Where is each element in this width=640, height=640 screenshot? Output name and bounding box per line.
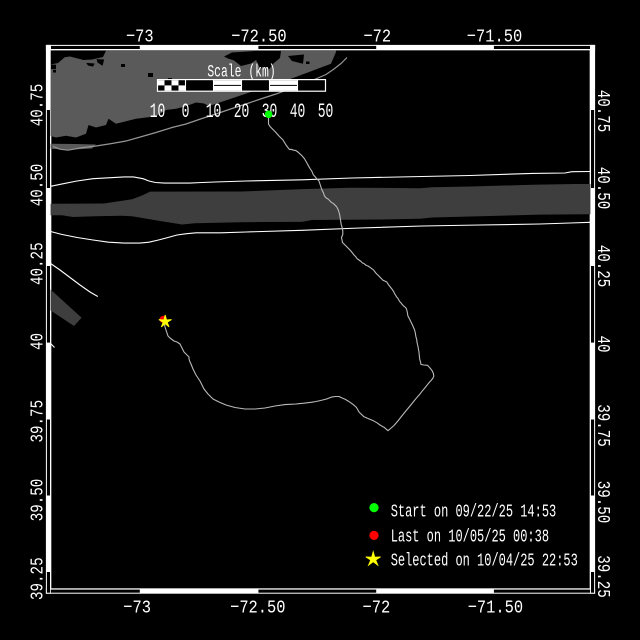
svg-text:39.25: 39.25 (592, 555, 613, 598)
svg-text:39.75: 39.75 (27, 400, 48, 443)
svg-text:40.25: 40.25 (27, 242, 48, 285)
svg-text:−71.50: −71.50 (468, 599, 523, 620)
svg-text:50: 50 (318, 101, 334, 124)
svg-text:−72: −72 (363, 599, 391, 620)
svg-text:10: 10 (206, 101, 222, 124)
svg-text:−73: −73 (126, 27, 154, 48)
svg-text:−71.50: −71.50 (467, 27, 522, 48)
svg-text:0: 0 (182, 101, 190, 124)
svg-text:−72: −72 (363, 27, 391, 48)
svg-text:40.75: 40.75 (27, 84, 48, 127)
svg-text:−73: −73 (123, 599, 151, 620)
svg-text:39.25: 39.25 (27, 557, 48, 600)
svg-text:−72.50: −72.50 (230, 599, 285, 620)
svg-text:Selected on 10/04/25 22:53: Selected on 10/04/25 22:53 (391, 550, 578, 571)
svg-text:39.75: 39.75 (592, 404, 613, 447)
svg-text:20: 20 (234, 101, 250, 124)
svg-text:40.75: 40.75 (592, 90, 613, 133)
svg-text:Start on 09/22/25 14:53: Start on 09/22/25 14:53 (391, 501, 557, 522)
svg-text:Last on 10/05/25 00:38: Last on 10/05/25 00:38 (391, 526, 549, 547)
svg-text:40: 40 (290, 101, 306, 124)
svg-text:39.50: 39.50 (27, 479, 48, 522)
svg-text:Scale (km): Scale (km) (207, 64, 275, 83)
svg-text:39.50: 39.50 (592, 481, 613, 524)
svg-text:40.25: 40.25 (592, 245, 613, 288)
svg-text:40.50: 40.50 (27, 164, 48, 207)
svg-text:10: 10 (150, 101, 166, 124)
svg-text:40: 40 (592, 335, 613, 352)
svg-text:40: 40 (27, 333, 48, 350)
svg-text:−72.50: −72.50 (231, 27, 286, 48)
svg-text:40.50: 40.50 (592, 167, 613, 210)
